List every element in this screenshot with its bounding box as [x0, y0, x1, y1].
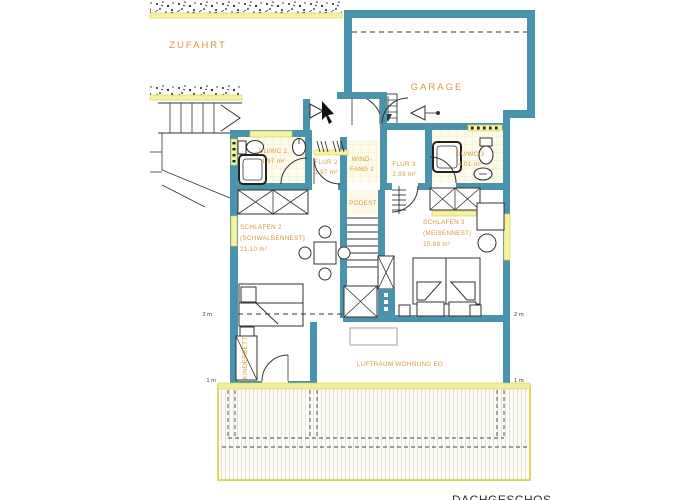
- schlafen3-name: SCHLAFEN 3: [423, 219, 465, 226]
- vegetation-strip-left: [150, 85, 242, 100]
- bath3-area: 4.01 m²: [458, 161, 481, 168]
- dim-1m-right: 1 m: [514, 378, 524, 384]
- wall-luftraum-left: [310, 322, 317, 385]
- void-x-box: [344, 286, 377, 317]
- floorplan-canvas: ZUFAHRT GARAGE: [0, 0, 700, 500]
- entry-door-symbol-left: [310, 104, 323, 118]
- porch-wall-right-stub: [380, 92, 387, 123]
- luftraum-opening: [350, 328, 397, 345]
- schlafen2-name: SCHLAFEN 2: [240, 224, 282, 231]
- stair-wall-right: [378, 190, 385, 256]
- bath2-area: 4.97 m²: [261, 158, 284, 165]
- floorplan-drawing: ZUFAHRT GARAGE: [0, 0, 700, 500]
- kinderbett: KINDERBETT: [236, 336, 257, 380]
- podest-label: PODEST: [349, 200, 377, 207]
- terrace-deck: [218, 385, 530, 480]
- garage-door-arc: [352, 95, 382, 125]
- schlafen3-area: 15.89 m²: [423, 241, 450, 248]
- flur3-name: FLUR 3: [392, 161, 416, 168]
- windfang-name-2: FANG 2: [350, 166, 374, 173]
- window-schlafen3-right: [504, 214, 510, 260]
- garage-wall-right: [527, 10, 535, 118]
- door-pivot-dot: [436, 111, 440, 115]
- exterior-stair: [150, 103, 242, 207]
- toilet-tank: [480, 138, 492, 146]
- window-schlafen2-left: [231, 216, 237, 246]
- mouse-cursor-icon: [322, 101, 334, 124]
- shaft-x-small: [378, 256, 394, 289]
- flur3-area: 2.93 m²: [392, 171, 415, 178]
- desk-square: [477, 203, 504, 230]
- garage-wall-left: [344, 18, 352, 95]
- windfang-name-1: WIND-: [352, 156, 372, 163]
- schlafen2-door-arc: [262, 355, 288, 381]
- schlafen3-nickname: (MEISENNEST): [423, 230, 472, 237]
- landing-edge-strip: [314, 150, 348, 155]
- toilet-tank: [238, 141, 246, 154]
- wardrobe-schlafen2: [238, 190, 308, 214]
- staircase: [347, 218, 378, 267]
- porch-wall-left-stub: [303, 99, 310, 135]
- double-bed: [399, 258, 481, 316]
- wardrobe-schlafen3: [430, 188, 480, 210]
- kinderbett-label: KINDERBETT: [242, 337, 249, 380]
- schlafen2-area: 21.10 m²: [240, 246, 267, 253]
- terrace-edge-strip: [218, 383, 530, 389]
- chair-circle: [478, 234, 496, 252]
- dim-2m-left: 2 m: [202, 312, 212, 318]
- sheet-caption: DACHGESCHOS: [452, 493, 552, 500]
- bath2-name: DU/WC 2: [259, 148, 288, 155]
- porch-wall-top: [337, 92, 380, 99]
- stair-direction-arrow: [221, 105, 240, 131]
- dim-1m-left: 1 m: [206, 378, 216, 384]
- flur2-name: FLUR 2: [314, 159, 338, 166]
- terrace: [218, 383, 530, 480]
- railing-ticks-right: [392, 186, 406, 214]
- bed-schlafen2: [239, 284, 303, 326]
- vegetation-strip-top: [150, 0, 342, 18]
- window-bath2-top: [250, 131, 292, 137]
- zufahrt-label: ZUFAHRT: [169, 40, 227, 51]
- wardrobe-strip: [432, 211, 476, 216]
- garage-label: GARAGE: [411, 82, 464, 93]
- schlafen2-nickname: (SCHWALBENNEST): [240, 235, 305, 242]
- bath3-name: DU/WC 3: [456, 151, 485, 158]
- garage-wall-top: [344, 10, 535, 18]
- dim-2m-right: 2 m: [514, 312, 524, 318]
- luftraum-label: LUFTRAUM WOHNUNG EG: [357, 361, 444, 368]
- entry-door-symbol-right: [411, 106, 425, 120]
- nightstand: [240, 327, 254, 336]
